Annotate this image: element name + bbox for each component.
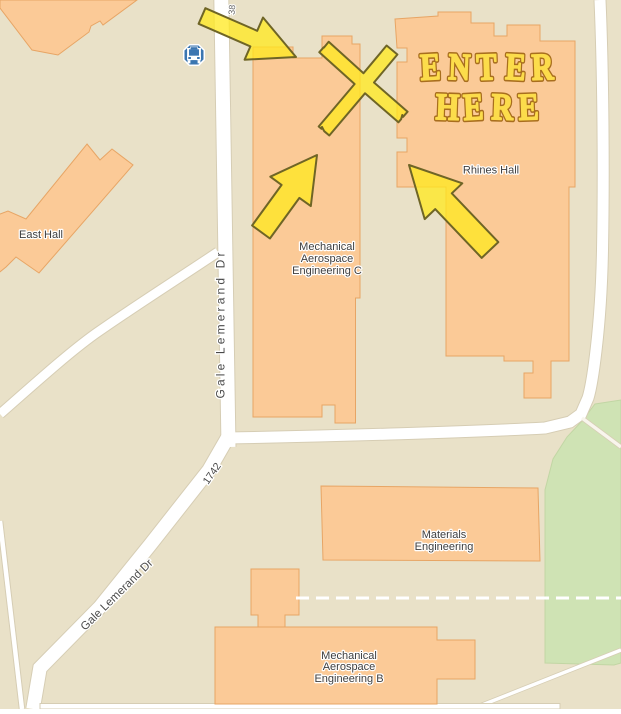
svg-text:38: 38 <box>227 4 238 15</box>
svg-text:Aerospace: Aerospace <box>301 253 354 265</box>
svg-text:East Hall: East Hall <box>19 229 63 241</box>
svg-text:Mechanical: Mechanical <box>299 241 355 253</box>
svg-text:Engineering C: Engineering C <box>292 265 362 277</box>
svg-text:T: T <box>476 46 498 89</box>
svg-text:E: E <box>419 46 441 89</box>
svg-text:Engineering: Engineering <box>415 541 474 553</box>
svg-text:Engineering B: Engineering B <box>314 673 383 685</box>
svg-text:E: E <box>462 86 484 129</box>
svg-text:R: R <box>531 46 555 89</box>
svg-text:Rhines Hall: Rhines Hall <box>463 165 519 177</box>
svg-text:Gale Lemerand Dr: Gale Lemerand Dr <box>214 253 228 399</box>
svg-text:N: N <box>448 46 472 89</box>
svg-text:E: E <box>504 46 526 89</box>
svg-text:E: E <box>518 86 540 129</box>
svg-text:R: R <box>491 86 515 129</box>
svg-text:H: H <box>435 86 460 129</box>
svg-text:Materials: Materials <box>422 529 467 541</box>
svg-text:Aerospace: Aerospace <box>323 661 376 673</box>
